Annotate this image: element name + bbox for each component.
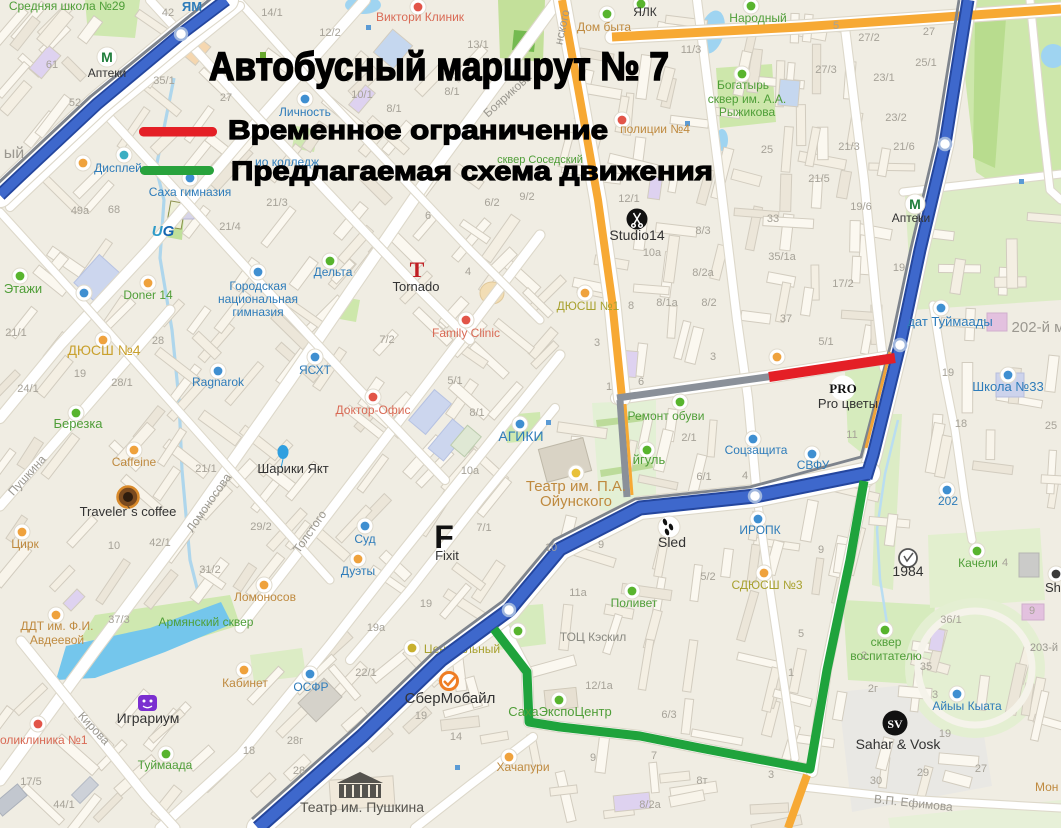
svg-text:ОСФР: ОСФР [293,680,328,694]
svg-text:23/1: 23/1 [873,72,894,84]
svg-text:35/1: 35/1 [153,75,174,87]
svg-text:21/5: 21/5 [808,173,829,185]
svg-text:21/3: 21/3 [838,141,859,153]
svg-text:17/2: 17/2 [832,278,853,290]
svg-text:UG: UG [152,223,175,240]
svg-text:ДДТ им. Ф.И.: ДДТ им. Ф.И. [21,619,94,633]
svg-text:Этажи: Этажи [4,281,42,296]
svg-text:202-й м: 202-й м [1012,319,1061,336]
svg-text:дат Туймаады: дат Туймаады [907,314,992,329]
svg-text:14: 14 [450,731,462,743]
svg-text:8: 8 [628,300,634,312]
svg-text:Поливет: Поливет [611,596,658,610]
svg-text:национальная: национальная [218,292,298,306]
svg-text:5: 5 [798,628,804,640]
svg-text:6: 6 [638,376,644,388]
svg-text:Качели: Качели [958,556,998,570]
svg-text:3: 3 [932,689,938,701]
svg-text:Doner 14: Doner 14 [123,288,173,302]
svg-text:9: 9 [1029,605,1035,617]
svg-text:28: 28 [293,765,305,777]
svg-text:Аптеки: Аптеки [88,66,127,80]
svg-text:22/1: 22/1 [355,667,376,679]
svg-text:Предлагаемая схема движения: Предлагаемая схема движения [231,156,713,186]
svg-text:8/2a: 8/2a [639,799,661,811]
svg-text:12/1a: 12/1a [585,680,613,692]
svg-text:Армянский сквер: Армянский сквер [159,615,254,629]
svg-text:9: 9 [598,539,604,551]
svg-text:СДЮСШ №3: СДЮСШ №3 [731,578,802,592]
svg-text:сквер: сквер [871,635,902,649]
svg-text:ЯЛК: ЯЛК [633,5,657,19]
svg-text:Березка: Березка [53,416,103,431]
svg-text:Studio14: Studio14 [609,227,664,243]
svg-text:24/1: 24/1 [17,383,38,395]
svg-text:27: 27 [923,26,935,38]
svg-text:Саха гимназия: Саха гимназия [149,185,232,199]
svg-text:Соцзащита: Соцзащита [725,443,788,457]
svg-text:19: 19 [939,728,951,740]
svg-text:Ремонт обуви: Ремонт обуви [628,409,705,423]
svg-text:Мон: Мон [1035,780,1058,794]
svg-text:29: 29 [917,767,929,779]
svg-text:М: М [101,49,113,65]
svg-text:СВФУ: СВФУ [797,458,830,472]
svg-text:Family Clinic: Family Clinic [432,326,500,340]
svg-text:36/1: 36/1 [940,614,961,626]
svg-text:1: 1 [606,381,612,393]
svg-text:42/1: 42/1 [149,537,170,549]
svg-text:19: 19 [74,368,86,380]
svg-text:Доктор-Офис: Доктор-Офис [336,403,411,417]
svg-text:27/2: 27/2 [858,32,879,44]
svg-text:Хачапури: Хачапури [496,760,549,774]
svg-text:10a: 10a [461,465,480,477]
svg-text:Ломоносов: Ломоносов [234,590,296,604]
svg-text:Временное ограничение: Временное ограничение [228,115,608,145]
svg-text:ЯМ: ЯМ [182,0,202,14]
svg-text:17/5: 17/5 [20,776,41,788]
svg-text:8/1a: 8/1a [656,297,678,309]
svg-text:28: 28 [152,335,164,347]
svg-text:сквер им. А.А.: сквер им. А.А. [708,92,786,106]
svg-text:11a: 11a [569,587,587,599]
svg-text:7/1: 7/1 [476,522,491,534]
svg-text:Средняя школа №29: Средняя школа №29 [9,0,126,13]
svg-text:СберМобайл: СберМобайл [405,690,496,707]
svg-text:ДЮСШ №4: ДЮСШ №4 [67,342,140,358]
svg-text:Sho: Sho [1045,580,1061,595]
svg-text:Цирк: Цирк [11,537,39,551]
svg-text:10a: 10a [643,247,662,259]
svg-text:18: 18 [243,745,255,757]
svg-text:21/4: 21/4 [219,221,240,233]
svg-text:ЯСХТ: ЯСХТ [299,363,332,377]
svg-text:19: 19 [420,598,432,610]
svg-text:М: М [909,196,921,212]
svg-text:21/3: 21/3 [266,197,287,209]
svg-text:4: 4 [1002,557,1008,569]
svg-text:5/1: 5/1 [447,375,462,387]
svg-text:19/6: 19/6 [850,201,871,213]
svg-text:8/1: 8/1 [469,407,484,419]
svg-text:3: 3 [594,337,600,349]
svg-text:19: 19 [415,710,427,722]
svg-text:7/2: 7/2 [379,334,394,346]
svg-text:Caffeine: Caffeine [112,455,157,469]
svg-text:1: 1 [788,667,794,679]
svg-text:7: 7 [651,750,657,762]
svg-text:Дисплей: Дисплей [94,161,142,175]
svg-text:25: 25 [1045,420,1057,432]
svg-text:8/1: 8/1 [386,103,401,115]
svg-text:5/1: 5/1 [818,336,833,348]
svg-text:11: 11 [846,429,857,441]
svg-text:3: 3 [768,769,774,781]
svg-text:Дельта: Дельта [314,265,353,279]
svg-text:Народный: Народный [729,11,786,25]
svg-text:61: 61 [46,59,58,71]
svg-text:йгуль: йгуль [633,452,666,467]
svg-text:Traveler`s coffee: Traveler`s coffee [80,504,177,519]
svg-text:29/2: 29/2 [250,521,271,533]
svg-text:21/1: 21/1 [5,327,26,339]
svg-text:Театр им. Пушкина: Театр им. Пушкина [300,799,424,815]
svg-text:Аптеки: Аптеки [892,211,931,225]
svg-text:19: 19 [942,367,954,379]
svg-text:6/2: 6/2 [484,197,499,209]
svg-text:11/3: 11/3 [681,44,702,56]
svg-text:SV: SV [887,717,903,731]
svg-text:Pro цветы: Pro цветы [818,396,878,411]
svg-text:25: 25 [761,144,773,156]
svg-text:37: 37 [780,313,792,325]
svg-text:Fixit: Fixit [435,548,459,563]
svg-text:30: 30 [870,775,882,787]
svg-text:Шарики Якт: Шарики Якт [257,461,328,476]
svg-text:Sled: Sled [658,534,686,550]
svg-text:44/1: 44/1 [53,799,74,811]
svg-text:9: 9 [818,544,824,556]
svg-text:33: 33 [767,213,779,225]
svg-text:Айыы Кыата: Айыы Кыата [932,699,1002,713]
svg-text:Школа №33: Школа №33 [972,379,1044,394]
svg-text:8/2: 8/2 [701,297,716,309]
svg-text:25/1: 25/1 [915,57,936,69]
svg-text:3: 3 [710,351,716,363]
svg-text:10/1: 10/1 [351,89,372,101]
svg-text:14/1: 14/1 [261,7,282,19]
svg-text:Рыжикова: Рыжикова [719,105,776,119]
svg-text:Ragnarok: Ragnarok [192,375,245,389]
svg-text:27/3: 27/3 [815,64,836,76]
svg-text:4: 4 [742,470,748,482]
svg-text:18: 18 [955,418,967,430]
svg-text:68: 68 [108,204,120,216]
svg-text:35/1a: 35/1a [768,251,796,263]
svg-text:35: 35 [920,661,932,673]
svg-text:ТОЦ Кэскил: ТОЦ Кэскил [560,630,626,644]
svg-text:10: 10 [108,540,120,552]
svg-text:Туймаада: Туймаада [138,758,193,772]
svg-text:31/2: 31/2 [199,564,220,576]
svg-text:9/2: 9/2 [519,191,534,203]
svg-text:Дуэты: Дуэты [341,564,375,578]
svg-text:19a: 19a [367,622,386,634]
svg-text:полиции №4: полиции №4 [620,122,690,136]
svg-text:49a: 49a [71,205,90,217]
svg-text:202: 202 [938,494,958,508]
svg-text:203-й: 203-й [1030,642,1058,654]
svg-text:8/2a: 8/2a [692,267,714,279]
svg-text:1984: 1984 [892,563,923,579]
svg-text:6/3: 6/3 [661,709,676,721]
svg-text:Авдеевой: Авдеевой [30,633,84,647]
svg-text:37/3: 37/3 [108,614,129,626]
svg-text:Суд: Суд [354,532,375,546]
svg-text:10: 10 [545,542,557,554]
svg-text:Кабинет: Кабинет [222,676,268,690]
svg-text:PRO: PRO [829,381,856,396]
svg-text:Tornado: Tornado [393,279,440,294]
svg-text:8т: 8т [696,775,707,787]
svg-text:5: 5 [833,20,839,32]
svg-text:27: 27 [975,763,987,775]
svg-text:гимназия: гимназия [232,305,283,319]
svg-text:Виктори Клиник: Виктори Клиник [376,10,465,24]
svg-text:8/3: 8/3 [695,225,710,237]
svg-text:АГИКИ: АГИКИ [498,428,543,444]
svg-text:ый: ый [4,145,24,162]
svg-text:6/1: 6/1 [696,471,711,483]
svg-text:Играриум: Играриум [117,710,180,726]
svg-text:Городская: Городская [229,279,286,293]
svg-text:52: 52 [69,97,81,109]
svg-text:Автобусный маршрут № 7: Автобусный маршрут № 7 [209,45,669,89]
svg-text:4: 4 [465,266,471,278]
svg-text:5/2: 5/2 [700,571,715,583]
svg-text:ДЮСШ №1: ДЮСШ №1 [557,299,620,313]
svg-text:28г: 28г [287,735,303,747]
svg-text:Дом быта: Дом быта [577,20,631,34]
svg-text:27: 27 [220,92,232,104]
svg-text:9: 9 [590,752,596,764]
svg-text:21/6: 21/6 [893,141,914,153]
svg-text:12/2: 12/2 [319,27,340,39]
svg-text:Sahar & Vosk: Sahar & Vosk [856,736,942,752]
svg-text:42: 42 [162,7,174,19]
svg-text:оликлиника №1: оликлиника №1 [0,733,88,747]
svg-text:Ойунского: Ойунского [540,493,612,510]
svg-text:2: 2 [861,650,867,662]
svg-text:12/1: 12/1 [618,193,639,205]
svg-text:2/1: 2/1 [681,432,696,444]
svg-text:Богатырь: Богатырь [717,78,769,92]
svg-text:2г: 2г [868,683,878,695]
svg-text:19: 19 [893,262,905,274]
svg-text:21/1: 21/1 [195,463,216,475]
svg-text:23/2: 23/2 [885,112,906,124]
svg-text:28/1: 28/1 [111,377,132,389]
svg-text:ИРОПК: ИРОПК [739,523,780,537]
svg-text:СахаЭкспоЦентр: СахаЭкспоЦентр [508,704,612,719]
svg-text:6: 6 [425,210,431,222]
